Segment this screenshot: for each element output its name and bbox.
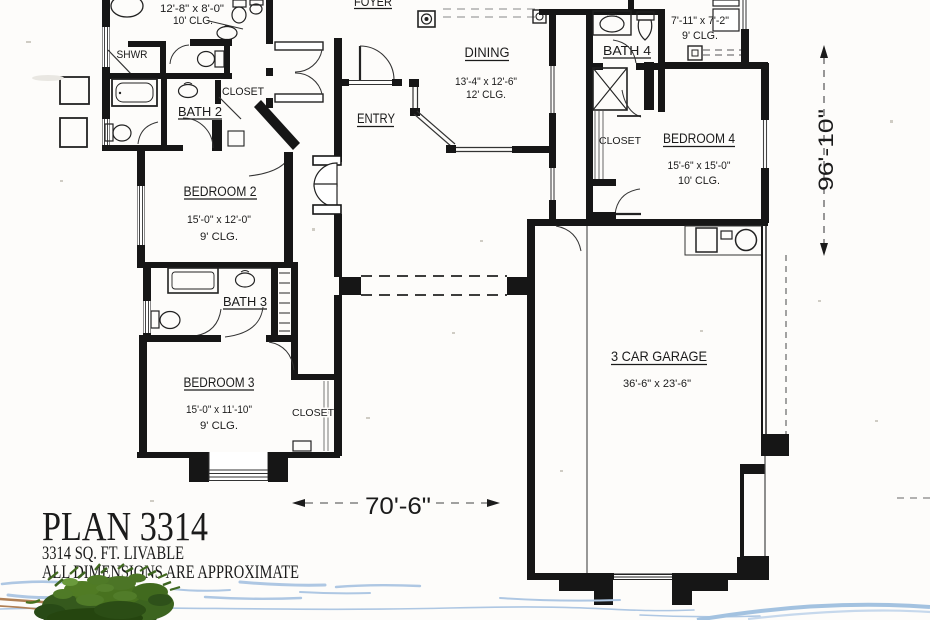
svg-text:BATH 3: BATH 3 [223, 295, 267, 309]
svg-text:CLOSET: CLOSET [292, 407, 335, 419]
svg-text:12'-8" x 8'-0": 12'-8" x 8'-0" [160, 3, 224, 15]
svg-text:BEDROOM 3: BEDROOM 3 [184, 375, 255, 390]
svg-text:FOYER: FOYER [354, 0, 392, 9]
svg-text:BEDROOM 2: BEDROOM 2 [184, 184, 257, 199]
svg-text:9' CLG.: 9' CLG. [682, 30, 718, 42]
svg-text:BEDROOM 4: BEDROOM 4 [663, 131, 735, 146]
svg-text:13'-4" x 12'-6": 13'-4" x 12'-6" [455, 76, 517, 88]
svg-text:DINING: DINING [465, 45, 510, 60]
svg-text:9' CLG.: 9' CLG. [200, 231, 238, 243]
svg-text:ENTRY: ENTRY [357, 111, 395, 126]
svg-text:15'-0" x 11'-10": 15'-0" x 11'-10" [186, 404, 252, 416]
svg-text:7'-11" x 7'-2": 7'-11" x 7'-2" [671, 15, 729, 27]
svg-text:ALL DIMENSIONS ARE APPROXIMATE: ALL DIMENSIONS ARE APPROXIMATE [42, 562, 299, 583]
svg-text:12' CLG.: 12' CLG. [466, 89, 506, 101]
svg-text:10' CLG.: 10' CLG. [173, 15, 213, 27]
svg-text:10' CLG.: 10' CLG. [678, 175, 720, 187]
svg-text:SHWR: SHWR [117, 49, 148, 61]
svg-text:15'-6" x 15'-0": 15'-6" x 15'-0" [668, 160, 731, 172]
svg-text:CLOSET: CLOSET [599, 135, 642, 147]
svg-text:3 CAR GARAGE: 3 CAR GARAGE [611, 348, 707, 364]
svg-text:9' CLG.: 9' CLG. [200, 420, 238, 432]
svg-text:96'-10": 96'-10" [815, 109, 838, 191]
svg-text:15'-0" x 12'-0": 15'-0" x 12'-0" [187, 214, 251, 226]
svg-text:3314 SQ. FT. LIVABLE: 3314 SQ. FT. LIVABLE [42, 544, 184, 564]
svg-text:BATH 2: BATH 2 [178, 104, 222, 119]
svg-text:36'-6" x 23'-6": 36'-6" x 23'-6" [623, 378, 691, 390]
svg-text:70'-6": 70'-6" [365, 493, 431, 520]
svg-text:PLAN 3314: PLAN 3314 [42, 503, 208, 549]
svg-text:CLOSET: CLOSET [222, 86, 264, 98]
